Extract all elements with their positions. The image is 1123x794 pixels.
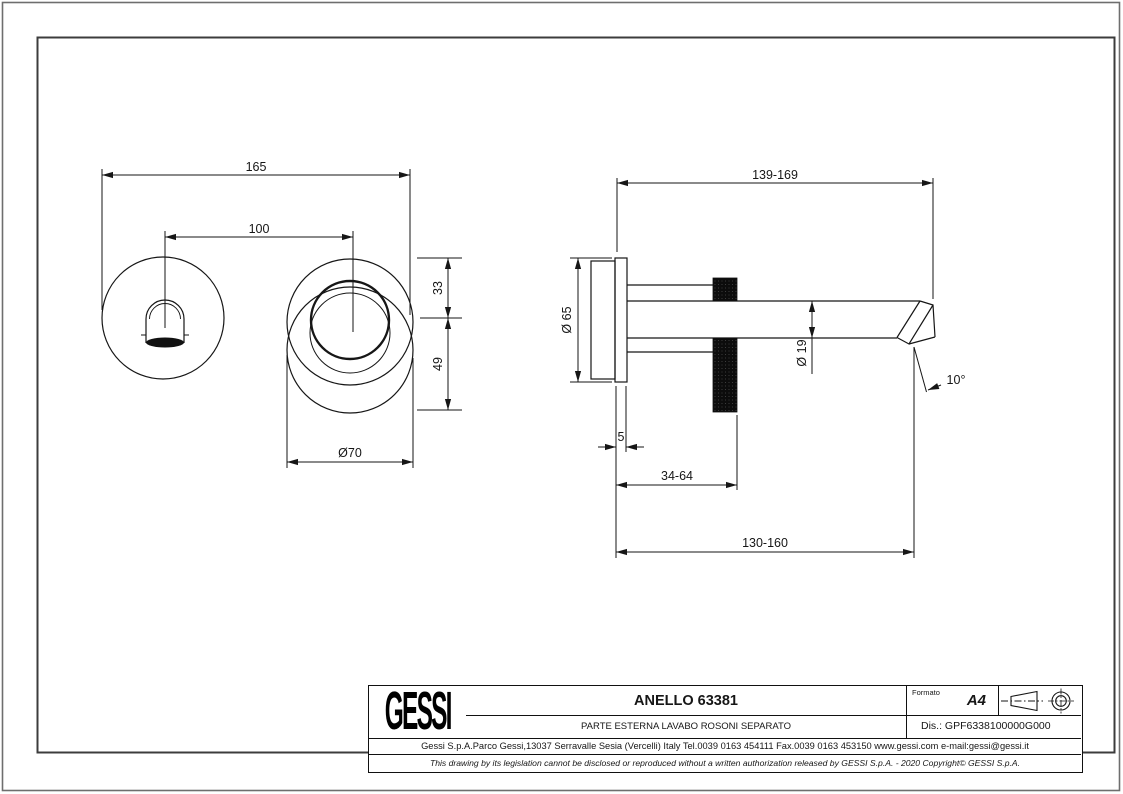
technical-drawing-canvas: 165 100 33 49 Ø70: [0, 0, 1123, 794]
front-view-group: [102, 257, 413, 413]
ring-front-circle: [287, 259, 413, 385]
dim-rosette-thickness: 5: [618, 430, 625, 444]
dim-spout-tube-diameter: Ø 19: [795, 339, 809, 366]
spout-rosette-circle: [102, 257, 224, 379]
drawing-code: Dis.: GPF6338100000G000: [907, 716, 1081, 737]
gessi-logo: GESSI: [369, 686, 466, 738]
wall-rosette-plate: [615, 258, 627, 382]
first-angle-projection-icon: [999, 687, 1081, 715]
projection-symbol-cell: [999, 686, 1081, 715]
spout-tip: [897, 301, 935, 344]
knurled-ring-lower: [713, 338, 737, 412]
spout-tube: [627, 301, 920, 338]
side-view-dimensions: [570, 178, 941, 558]
title-block-right: Formato A4 Dis.: GPF6338100000G000: [906, 686, 1081, 738]
format-row: Formato A4: [907, 686, 1081, 716]
ring-hole-inner-circle: [310, 293, 390, 373]
dim-upper-offset: 33: [431, 281, 445, 295]
dim-ring-diameter: Ø70: [338, 446, 362, 460]
drawing-title: ANELLO 63381: [466, 686, 906, 716]
drawing-subtitle: PARTE ESTERNA LAVABO ROSONI SEPARATO: [466, 716, 906, 738]
title-block: GESSI ANELLO 63381 PARTE ESTERNA LAVABO …: [368, 685, 1083, 773]
legal-notice-line: This drawing by its legislation cannot b…: [369, 754, 1081, 771]
knurled-ring-upper: [713, 278, 737, 301]
spout-opening: [146, 338, 184, 348]
dim-hole-spacing: 100: [249, 222, 270, 236]
dim-lower-offset: 49: [431, 357, 445, 371]
dim-outlet-angle: 10°: [947, 373, 966, 387]
format-value: A4: [967, 692, 986, 709]
drawing-frame: [38, 38, 1115, 753]
title-block-center: ANELLO 63381 PARTE ESTERNA LAVABO ROSONI…: [466, 686, 906, 738]
format-label: Formato: [912, 688, 940, 697]
dim-ring-position: 34-64: [661, 469, 693, 483]
gessi-logo-text: GESSI: [385, 686, 451, 738]
front-view-dimensions: [102, 169, 462, 468]
dim-spout-reach: 139-169: [752, 168, 798, 182]
dim-overall-width: 165: [246, 160, 267, 174]
side-view-group: [591, 258, 935, 412]
mounting-sleeve: [627, 285, 713, 352]
side-view-dimension-labels: 139-169 Ø 65 Ø 19 5 34-64 130-160 10°: [560, 168, 965, 550]
drawing-sheet: 165 100 33 49 Ø70: [0, 0, 1123, 794]
page-outer-border: [3, 3, 1120, 791]
inwall-body: [591, 261, 615, 379]
format-cell: Formato A4: [907, 686, 999, 715]
company-info-line: Gessi S.p.A.Parco Gessi,13037 Serravalle…: [369, 738, 1081, 754]
dim-outlet-distance: 130-160: [742, 536, 788, 550]
dim-rosette-diameter: Ø 65: [560, 306, 574, 333]
ring-back-circle: [287, 287, 413, 413]
front-view-dimension-labels: 165 100 33 49 Ø70: [246, 160, 445, 460]
